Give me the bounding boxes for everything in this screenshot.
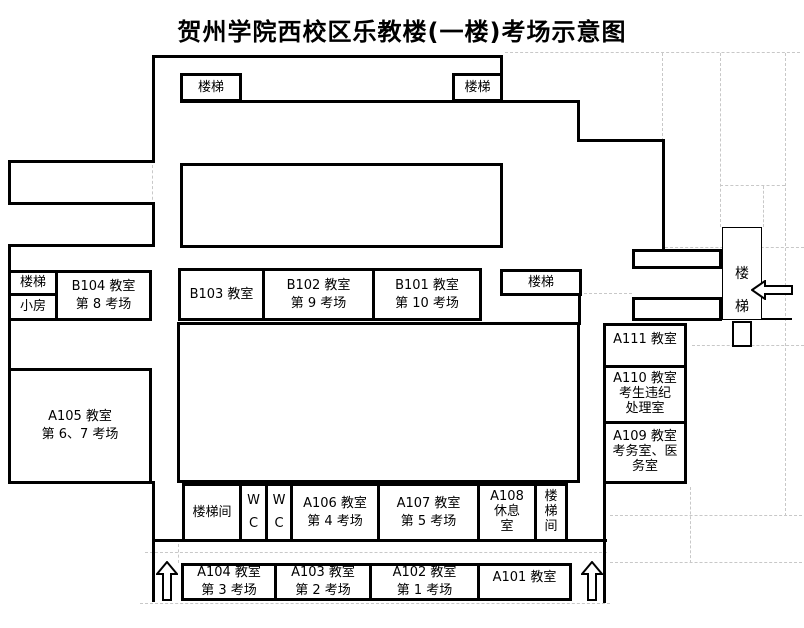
room-label: A110 教室 xyxy=(613,372,677,387)
room-label: 室 xyxy=(500,520,513,535)
room-label: W xyxy=(273,490,286,512)
room-stair-top-right: 楼梯 xyxy=(452,73,503,102)
gridline xyxy=(152,165,153,205)
room-label: A109 教室 xyxy=(613,430,677,445)
room-label: 考务室、医 xyxy=(612,445,677,460)
room-a102: A102 教室 第 1 考场 xyxy=(372,566,480,598)
room-label: 小房 xyxy=(20,298,46,316)
room-label: 楼梯 xyxy=(464,79,490,97)
gridline xyxy=(610,515,802,516)
wall xyxy=(8,244,155,247)
room-label: C xyxy=(274,513,283,535)
room-label: 第 1 考场 xyxy=(397,582,453,600)
room-block-upper xyxy=(180,163,503,248)
wall xyxy=(8,202,155,205)
room-a110: A110 教室 考生违纪 处理室 xyxy=(606,368,684,424)
room-label: W xyxy=(247,490,260,512)
room-stair-mid-right: 楼梯 xyxy=(500,269,582,296)
up-arrow-icon xyxy=(581,561,603,601)
wall xyxy=(152,55,155,162)
wall-bar-upper xyxy=(632,249,722,269)
room-label: A107 教室 xyxy=(397,495,461,513)
wall xyxy=(152,539,185,542)
wall xyxy=(762,318,792,320)
room-label: 第 2 考场 xyxy=(295,582,351,600)
wall xyxy=(8,160,11,205)
stair-landing-box xyxy=(732,321,752,347)
room-label: 处理室 xyxy=(625,402,664,417)
room-label: B104 教室 xyxy=(72,278,136,296)
room-label: A104 教室 xyxy=(197,564,261,582)
wall xyxy=(8,160,155,163)
room-wc-2: W C xyxy=(268,486,293,539)
room-label: 考生违纪 xyxy=(619,387,671,402)
room-label: 第 9 考场 xyxy=(291,295,347,313)
wall xyxy=(8,318,11,371)
gridline xyxy=(505,52,800,53)
gridline xyxy=(145,552,607,553)
wall xyxy=(152,202,155,247)
room-label: A111 教室 xyxy=(613,331,677,349)
wall-bar-lower xyxy=(632,297,722,321)
room-stair-hall-left: 楼梯间 xyxy=(185,486,242,539)
room-row-bottom: A104 教室 第 3 考场 A103 教室 第 2 考场 A102 教室 第 … xyxy=(181,563,572,601)
room-label: 梯 xyxy=(735,298,749,317)
room-label: 间 xyxy=(544,520,557,535)
room-stair-left: 楼梯 xyxy=(11,273,55,296)
room-a107: A107 教室 第 5 考场 xyxy=(380,486,480,539)
gridline xyxy=(610,562,802,563)
room-label: 楼 xyxy=(544,490,557,505)
room-a109: A109 教室 考务室、医 务室 xyxy=(606,424,684,481)
wall xyxy=(662,139,665,252)
gridline xyxy=(662,53,663,141)
gridline xyxy=(720,185,785,186)
room-stair-right: 楼 梯 xyxy=(722,227,762,320)
room-label: A106 教室 xyxy=(303,495,367,513)
room-b104: B104 教室 第 8 考场 xyxy=(58,273,149,318)
room-a108: A108 休息 室 xyxy=(480,486,537,539)
room-label: 楼 xyxy=(735,265,749,284)
room-a105: A105 教室 第 6、7 考场 xyxy=(8,368,152,484)
room-small: 小房 xyxy=(11,296,55,318)
room-label: 楼梯间 xyxy=(192,504,231,522)
room-b103: B103 教室 xyxy=(181,271,265,318)
room-row-b: B103 教室 B102 教室 第 9 考场 B101 教室 第 10 考场 xyxy=(178,268,482,321)
page-title: 贺州学院西校区乐教楼(一楼)考场示意图 xyxy=(0,12,804,47)
room-wc-1: W C xyxy=(242,486,268,539)
room-a111: A111 教室 xyxy=(606,326,684,368)
room-label: A103 教室 xyxy=(291,564,355,582)
room-label: B101 教室 xyxy=(395,277,459,295)
floor-plan: 贺州学院西校区乐教楼(一楼)考场示意图 楼梯 楼梯 xyxy=(0,0,804,628)
wall xyxy=(152,55,503,58)
room-a106: A106 教室 第 4 考场 xyxy=(293,486,380,539)
room-label: 楼梯 xyxy=(20,274,46,292)
gridline xyxy=(690,487,691,563)
room-label: A105 教室 xyxy=(48,408,112,426)
room-label: 休息 xyxy=(494,505,520,520)
left-arrow-icon xyxy=(751,280,793,300)
gridline xyxy=(720,53,721,227)
room-label: 第 8 考场 xyxy=(76,296,132,314)
wall xyxy=(565,539,607,542)
room-stair-hall-right: 楼 梯 间 xyxy=(537,486,565,539)
room-label: A102 教室 xyxy=(393,564,457,582)
room-label: C xyxy=(249,513,258,535)
central-hall xyxy=(177,322,580,483)
room-column-a: A111 教室 A110 教室 考生违纪 处理室 A109 教室 考务室、医 务… xyxy=(603,323,687,484)
wall xyxy=(578,294,581,325)
wall xyxy=(577,139,665,142)
room-a103: A103 教室 第 2 考场 xyxy=(277,566,372,598)
gridline xyxy=(584,293,632,294)
wall xyxy=(8,244,11,273)
room-label: 楼梯 xyxy=(528,274,554,292)
room-label: 第 3 考场 xyxy=(201,582,257,600)
up-arrow-icon xyxy=(156,561,178,601)
gridline xyxy=(763,186,764,227)
gridline xyxy=(140,603,610,604)
room-b102: B102 教室 第 9 考场 xyxy=(265,271,375,318)
room-label: 务室 xyxy=(632,460,658,475)
room-stair-top-left: 楼梯 xyxy=(180,73,242,102)
wall xyxy=(603,481,606,603)
room-a101: A101 教室 xyxy=(480,566,569,598)
room-label: 第 5 考场 xyxy=(401,513,457,531)
room-a104: A104 教室 第 3 考场 xyxy=(184,566,277,598)
room-row-middle: 楼梯间 W C W C A106 教室 第 4 考场 A107 教室 第 5 考… xyxy=(182,483,568,542)
room-label: 梯 xyxy=(544,505,557,520)
gridline xyxy=(178,544,179,563)
room-label: A101 教室 xyxy=(493,569,557,587)
wall xyxy=(577,100,580,142)
room-label: B102 教室 xyxy=(287,277,351,295)
room-label: 第 6、7 考场 xyxy=(42,426,119,444)
room-label: 第 4 考场 xyxy=(307,513,363,531)
room-block-b104: 楼梯 小房 B104 教室 第 8 考场 xyxy=(8,270,152,321)
room-label: A108 xyxy=(490,490,524,505)
room-b101: B101 教室 第 10 考场 xyxy=(375,271,479,318)
room-label: 第 10 考场 xyxy=(395,295,459,313)
room-label: 楼梯 xyxy=(198,79,224,97)
room-label: B103 教室 xyxy=(190,286,254,304)
